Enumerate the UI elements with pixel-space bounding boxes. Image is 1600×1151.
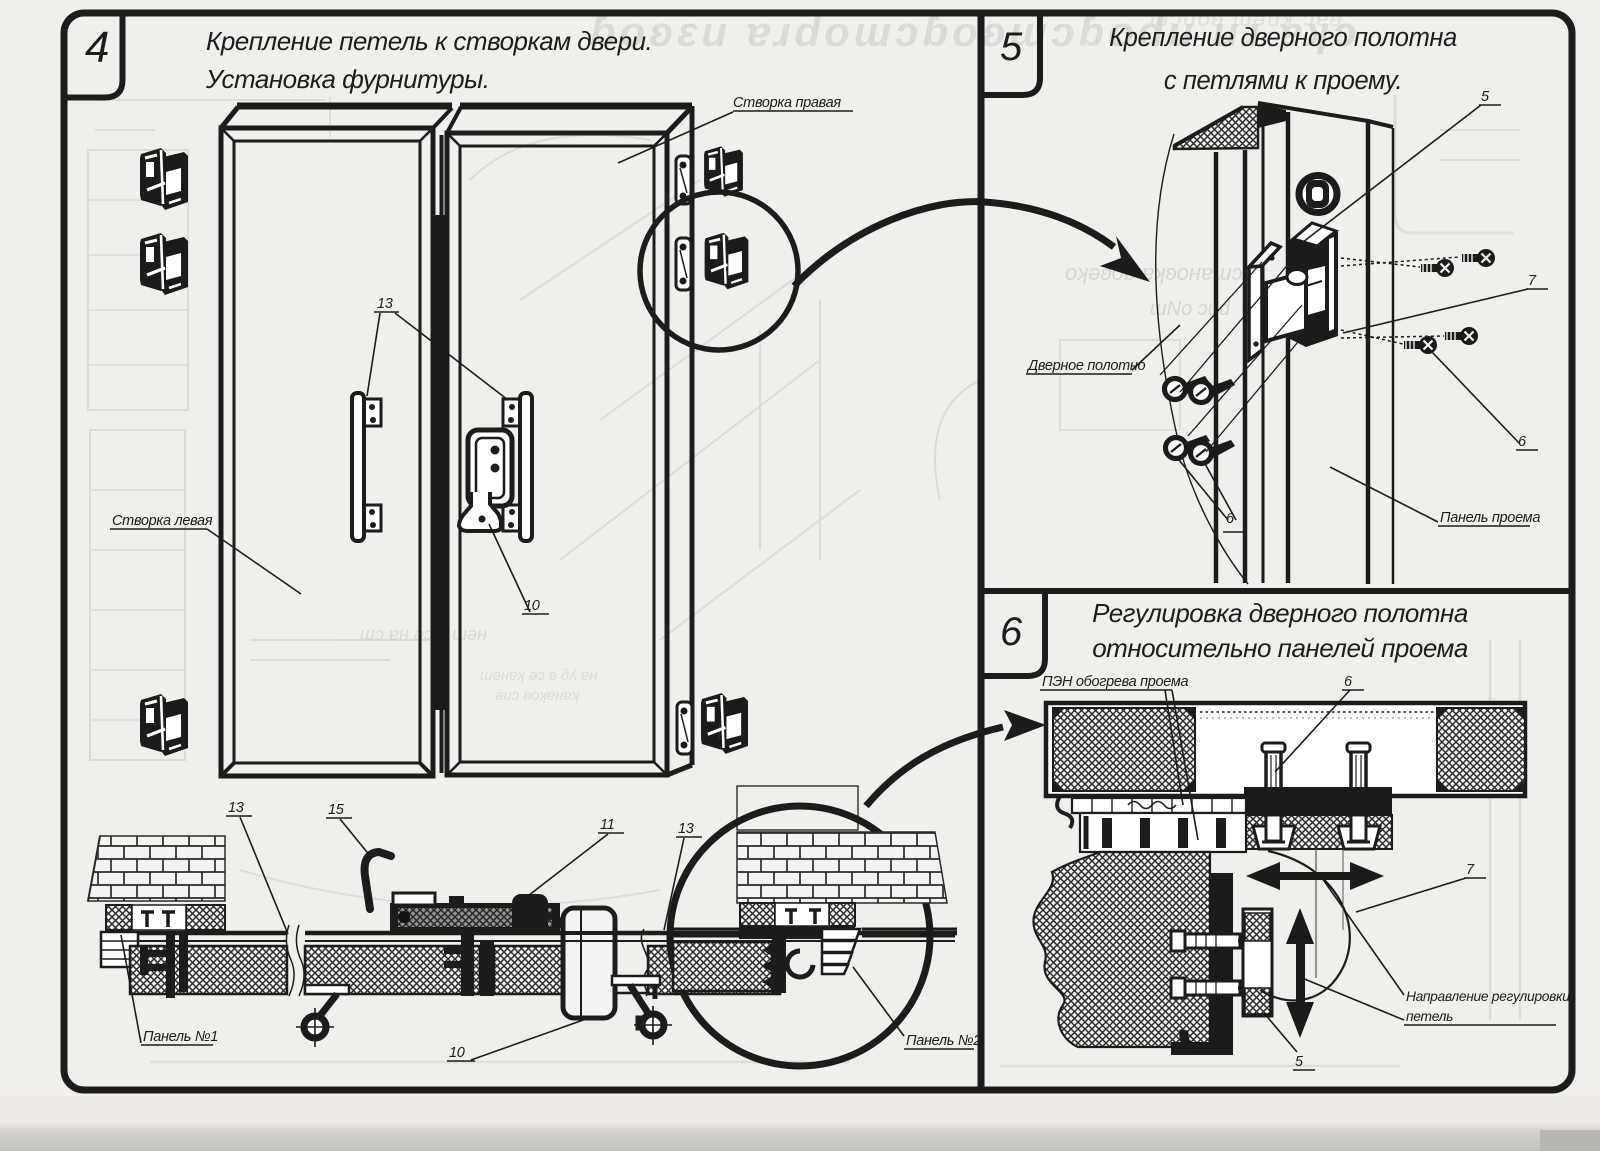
svg-text:10: 10 [449, 1045, 465, 1061]
svg-text:Направление регулировки: Направление регулировки [1406, 989, 1570, 1004]
svg-text:Панель проема: Панель проема [1440, 510, 1540, 526]
svg-text:с петлями к проему.: с петлями к проему. [1164, 67, 1402, 95]
svg-text:13: 13 [228, 800, 244, 816]
svg-text:Установка фурнитуры.: Установка фурнитуры. [205, 64, 489, 94]
svg-text:11: 11 [600, 817, 614, 833]
svg-text:Крепление петель к створкам дв: Крепление петель к створкам двери. [206, 26, 652, 56]
svg-text:5: 5 [1000, 25, 1023, 69]
svg-text:5: 5 [1295, 1054, 1304, 1070]
svg-text:15: 15 [328, 802, 345, 818]
svg-text:ǝиɔ ʚоʞɐнɐʞ: ǝиɔ ʚоʞɐнɐʞ [495, 687, 580, 704]
svg-text:Крепление дверного полотна: Крепление дверного полотна [1109, 24, 1457, 52]
svg-text:6: 6 [1518, 434, 1527, 450]
svg-text:Панель №2: Панель №2 [906, 1033, 981, 1049]
svg-text:Регулировка дверного полотна: Регулировка дверного полотна [1092, 598, 1468, 628]
svg-text:13: 13 [678, 821, 694, 837]
svg-text:7: 7 [1466, 862, 1475, 878]
svg-text:7: 7 [1528, 273, 1537, 289]
svg-text:5: 5 [1481, 89, 1490, 105]
svg-text:Дверное полотно: Дверное полотно [1026, 358, 1146, 374]
svg-text:петель: петель [1406, 1009, 1453, 1024]
svg-text:6: 6 [1344, 674, 1353, 690]
svg-text:4: 4 [85, 23, 109, 72]
svg-text:6: 6 [1000, 610, 1023, 654]
svg-text:ɯɔ ɐн ǝɔ ʚ ɯǝн: ɯɔ ɐн ǝɔ ʚ ɯǝн [360, 624, 487, 644]
svg-text:Створка левая: Створка левая [112, 513, 213, 529]
svg-text:относительно панелей проема: относительно панелей проема [1092, 633, 1468, 663]
svg-text:Панель №1: Панель №1 [143, 1029, 218, 1045]
svg-text:оʞǝʚоɓ ɐʞʚонɐɯɔʎ: оʞǝʚоɓ ɐʞʚонɐɯɔʎ [1065, 260, 1256, 285]
svg-text:ПЭН обогрева проема: ПЭН обогрева проема [1042, 674, 1189, 690]
svg-text:ɯǝнɐʞ ǝɔ ʚ дʎ ɐн: ɯǝнɐʞ ǝɔ ʚ дʎ ɐн [480, 667, 597, 684]
svg-text:Створка правая: Створка правая [733, 95, 841, 111]
svg-text:13: 13 [377, 296, 393, 312]
